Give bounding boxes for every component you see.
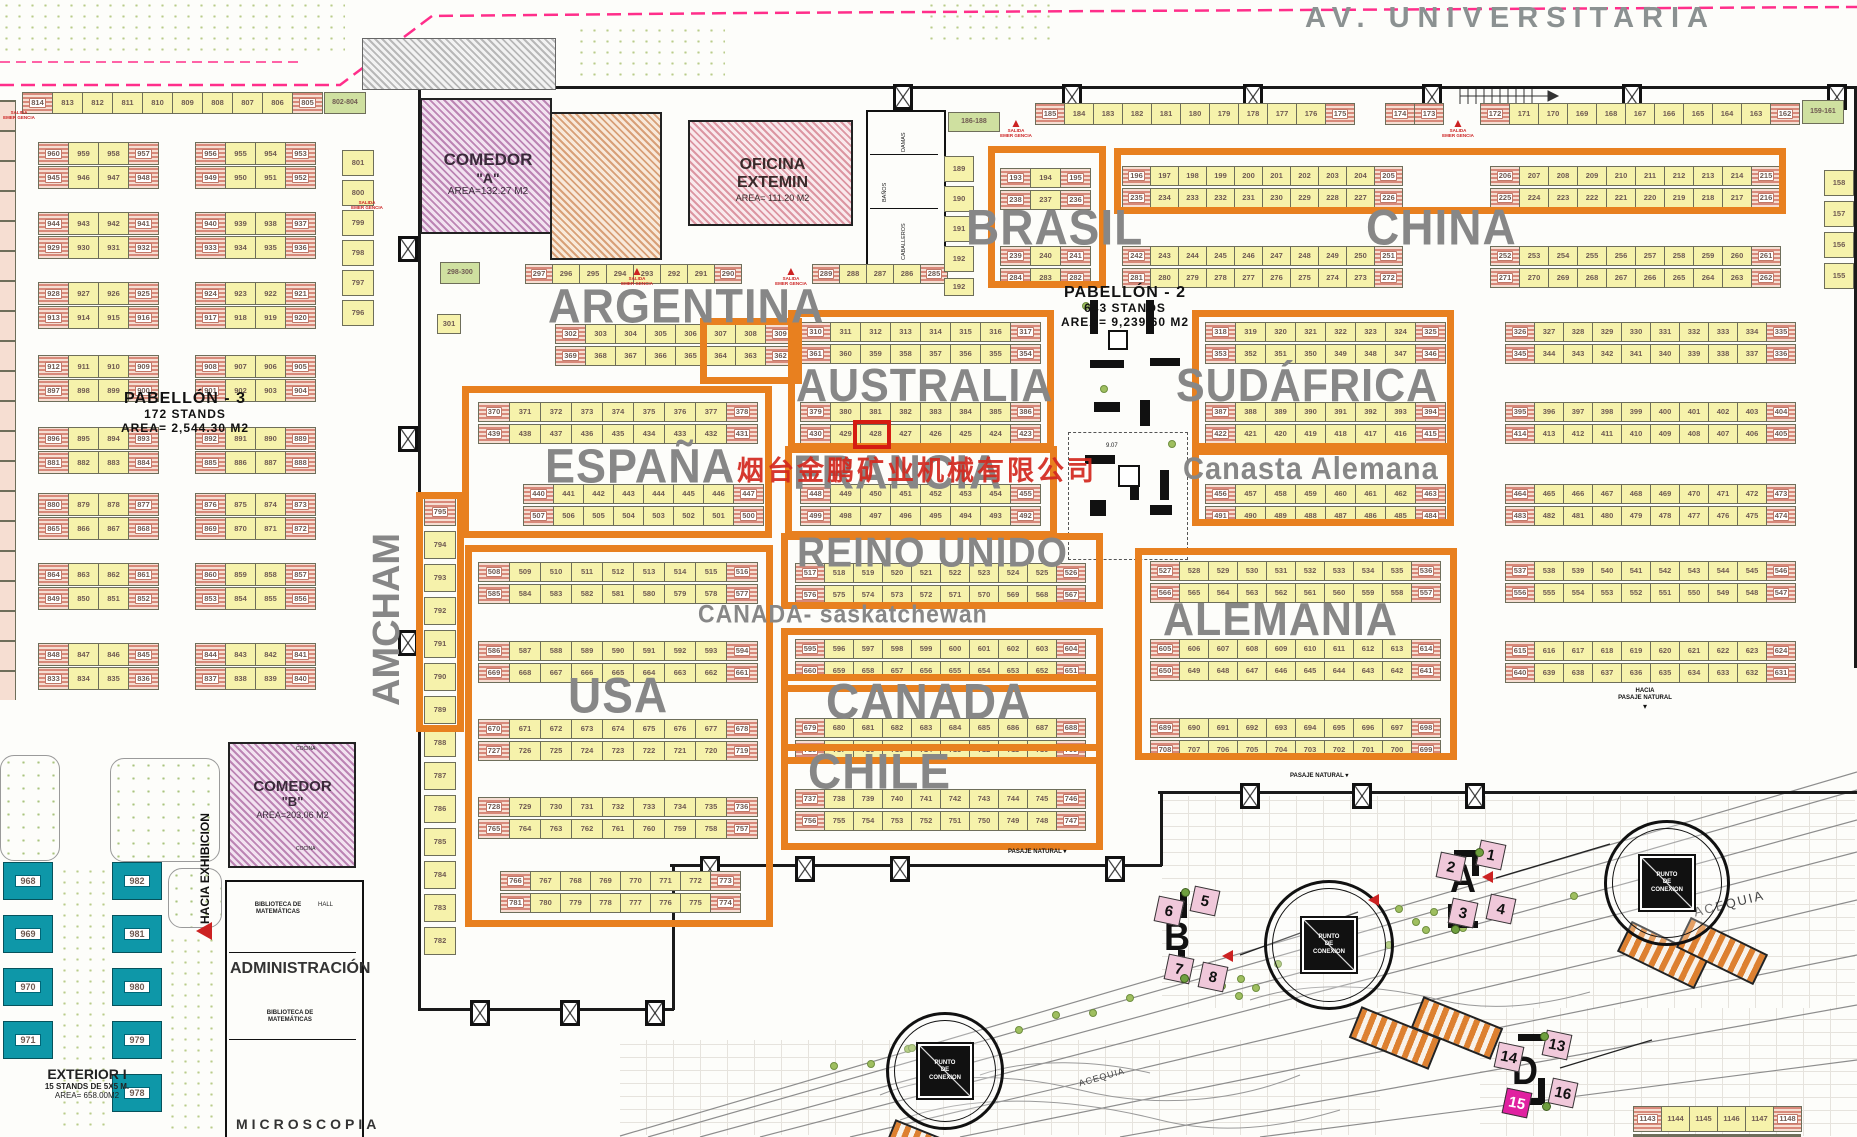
- stand-329: 329: [1592, 322, 1622, 342]
- stand-number: 221: [1615, 194, 1628, 202]
- stand-number: 429: [839, 430, 852, 438]
- stand-589: 589: [571, 641, 603, 661]
- stand-536: 536: [1411, 561, 1441, 581]
- stand-number: 246: [1242, 252, 1255, 260]
- stand-number: 971: [15, 1034, 40, 1046]
- stand-618: 618: [1592, 641, 1622, 661]
- stand-number: 838: [234, 675, 247, 683]
- stand-212: 212: [1664, 166, 1694, 186]
- stand-number: 504: [622, 512, 635, 520]
- stand-621: 621: [1679, 641, 1709, 661]
- stand-495: 495: [920, 506, 951, 526]
- stand-982: 982: [112, 862, 162, 900]
- salida-emergencia-sign: ▲SALIDAEMER GENCIA: [620, 266, 654, 286]
- stand-553: 553: [1592, 583, 1622, 603]
- label-usa: USA: [568, 666, 668, 724]
- stand-780: 780: [530, 893, 561, 913]
- stand-806: 806: [262, 92, 293, 114]
- stand-597: 597: [853, 639, 883, 659]
- stand-number: 757: [734, 824, 751, 834]
- stand-number: 843: [234, 651, 247, 659]
- stand-1147: 1147: [1745, 1106, 1774, 1132]
- stand-377: 377: [695, 402, 727, 422]
- stand-number: 663: [674, 669, 687, 677]
- marker-square-4: 4: [1486, 894, 1517, 925]
- stand-166: 166: [1654, 103, 1684, 125]
- stand-number: 867: [107, 525, 120, 533]
- stand-784: 784: [424, 861, 456, 889]
- stand-707: 707: [1179, 740, 1209, 760]
- stand-number: 839: [264, 675, 277, 683]
- stand-596: 596: [824, 639, 854, 659]
- stand-number: 958: [107, 150, 120, 158]
- stand-192: 192: [944, 278, 974, 296]
- stand-671: 671: [509, 719, 541, 739]
- stand-number: 602: [1007, 645, 1020, 653]
- salida-text: SALIDAEMER GENCIA: [350, 200, 384, 210]
- stand-number: 854: [234, 595, 247, 603]
- stand-405: 405: [1766, 424, 1796, 444]
- stand-1144: 1144: [1661, 1106, 1690, 1132]
- stand-number: 471: [1717, 490, 1730, 498]
- stand-587: 587: [509, 641, 541, 661]
- stand-number: 529: [1217, 567, 1230, 575]
- stand-599: 599: [911, 639, 941, 659]
- stand-number: 574: [862, 591, 875, 599]
- stand-1146: 1146: [1717, 1106, 1746, 1132]
- stairs-icon: [1460, 88, 1558, 104]
- stand-number: 280: [1158, 274, 1171, 282]
- stand-531: 531: [1266, 561, 1296, 581]
- stand-number: 516: [734, 567, 751, 577]
- stand-number: 498: [839, 512, 852, 520]
- stand-624: 624: [1766, 641, 1796, 661]
- furniture-icon: [1140, 400, 1150, 426]
- furniture-icon: [1090, 360, 1124, 368]
- stand-751: 751: [940, 811, 970, 831]
- stand-197: 197: [1150, 166, 1179, 186]
- stand-number: 786: [434, 805, 447, 813]
- stand-number: 585: [486, 589, 503, 599]
- chinese-watermark: 烟台金鹏矿业机械有限公司: [737, 449, 1097, 488]
- stand-number: 534: [1362, 567, 1375, 575]
- stand-535: 535: [1382, 561, 1412, 581]
- stand-637: 637: [1592, 663, 1622, 683]
- stand-number: 496: [899, 512, 912, 520]
- stand-374: 374: [602, 402, 634, 422]
- stand-number: 596: [833, 645, 846, 653]
- stand-619: 619: [1621, 641, 1651, 661]
- stand-number: 929: [45, 243, 62, 253]
- stand-879: 879: [68, 493, 99, 516]
- stand-951: 951: [255, 166, 286, 189]
- stand-number: 545: [1746, 567, 1759, 575]
- stand-914: 914: [68, 306, 99, 329]
- salida-emergencia-sign: ▲SALIDAEMER GENCIA: [774, 266, 808, 286]
- stand-number: 811: [121, 99, 133, 107]
- stand-278: 278: [1206, 268, 1235, 288]
- stand-number: 623: [1746, 647, 1759, 655]
- stand-number: 711: [1007, 746, 1019, 754]
- stand-number: 396: [1543, 408, 1556, 416]
- stand-698: 698: [1411, 718, 1441, 738]
- stand-number: 270: [1528, 274, 1541, 282]
- stand-286: 286: [893, 264, 921, 284]
- stand-223: 223: [1548, 188, 1578, 208]
- pilaster-icon: [893, 84, 913, 110]
- stand-number: 311: [839, 328, 851, 336]
- stand-676: 676: [664, 719, 696, 739]
- stand-number: 419: [1304, 430, 1317, 438]
- stand-number: 539: [1572, 567, 1585, 575]
- stand-170: 170: [1538, 103, 1568, 125]
- stand-934: 934: [225, 236, 256, 259]
- stand-number: 928: [45, 289, 62, 299]
- stand-number: 330: [1630, 328, 1643, 336]
- green-dot: [1412, 918, 1420, 926]
- stand-number: 538: [1543, 567, 1556, 575]
- stand-number: 554: [1572, 589, 1585, 597]
- stand-number: 194: [1039, 174, 1052, 182]
- stand-312: 312: [860, 322, 891, 342]
- label-oficina-extemin: OFICINAEXTEMINAREA= 111.20 M2: [700, 156, 845, 203]
- marker-dot: [1180, 974, 1189, 983]
- stand-221: 221: [1606, 188, 1636, 208]
- stand-number: 849: [45, 594, 62, 604]
- stand-723: 723: [602, 741, 634, 761]
- punto-de-conexion-label: PUNTODECONEXION: [1640, 856, 1694, 910]
- stand-number: 374: [612, 408, 625, 416]
- stand-939: 939: [225, 212, 256, 235]
- stand-790: 790: [424, 663, 456, 691]
- stand-number: 532: [1304, 567, 1317, 575]
- stand-668: 668: [509, 663, 541, 683]
- stand-number: 190: [953, 195, 966, 203]
- stand-941: 941: [128, 212, 159, 235]
- stand-909: 909: [128, 355, 159, 378]
- stand-number: 751: [949, 817, 962, 825]
- stand-722: 722: [633, 741, 665, 761]
- stand-710: 710: [1027, 740, 1057, 760]
- stand-number: 180: [1189, 110, 1202, 118]
- stand-number: 371: [519, 408, 532, 416]
- stand-number: 847: [77, 651, 90, 659]
- stand-533: 533: [1324, 561, 1354, 581]
- stand-418: 418: [1325, 424, 1356, 444]
- stand-number: 747: [1063, 816, 1080, 826]
- stand-number: 667: [550, 669, 563, 677]
- red-arrow-icon: [1222, 950, 1233, 962]
- stand-number: 189: [953, 165, 966, 173]
- stand-number: 797: [352, 279, 365, 287]
- stand-number: 541: [1630, 567, 1643, 575]
- stand-345: 345: [1505, 344, 1535, 364]
- stand-number: 587: [519, 647, 532, 655]
- stand-854: 854: [225, 587, 256, 610]
- stand-403: 403: [1737, 402, 1767, 422]
- stand-number: 761: [612, 825, 625, 833]
- stand-979: 979: [112, 1021, 162, 1059]
- stand-number: 873: [292, 500, 309, 510]
- label-comedor-a: COMEDOR"A"AREA=132.27 M2: [418, 150, 558, 197]
- stand-number: 1145: [1695, 1115, 1711, 1123]
- stand-number: 638: [1572, 669, 1585, 677]
- stand-263: 263: [1722, 268, 1752, 288]
- stand-258: 258: [1664, 246, 1694, 266]
- stand-615: 615: [1505, 641, 1535, 661]
- stand-588: 588: [540, 641, 572, 661]
- stand-number: 949: [202, 173, 219, 183]
- stand-695: 695: [1324, 718, 1354, 738]
- stand-number: 435: [612, 430, 625, 438]
- stand-600: 600: [940, 639, 970, 659]
- stand-423: 423: [1010, 424, 1041, 444]
- stand-number: 578: [705, 590, 718, 598]
- stand-number: 422: [1212, 429, 1229, 439]
- stand-262: 262: [1751, 268, 1781, 288]
- stand-313: 313: [890, 322, 921, 342]
- stand-287: 287: [866, 264, 894, 284]
- stand-885: 885: [195, 451, 226, 474]
- stand-955: 955: [225, 142, 256, 165]
- stand-839: 839: [255, 667, 286, 690]
- green-dot: [1089, 1009, 1097, 1017]
- stand-number: 234: [1158, 194, 1171, 202]
- stand-number: 651: [1063, 666, 1080, 676]
- stand-602: 602: [998, 639, 1028, 659]
- stand-number: 952: [292, 173, 309, 183]
- stand-number: 643: [1362, 667, 1375, 675]
- stand-663: 663: [664, 663, 696, 683]
- stand-398: 398: [1592, 402, 1622, 422]
- stand-number: 950: [234, 174, 247, 182]
- stand-number: 447: [740, 489, 757, 499]
- stand-736: 736: [726, 797, 758, 817]
- stand-number: 622: [1717, 647, 1730, 655]
- stand-869: 869: [195, 517, 226, 540]
- stand-number: 298-300: [447, 269, 473, 277]
- stand-number: 490: [1244, 512, 1257, 520]
- stand-number: 509: [519, 568, 532, 576]
- stand-number: 916: [135, 313, 152, 323]
- stand-number: 275: [1298, 274, 1311, 282]
- stand-number: 850: [77, 595, 90, 603]
- stand-773: 773: [710, 871, 741, 891]
- stand-484: 484: [1415, 506, 1446, 526]
- stand-number: 813: [61, 99, 74, 107]
- stand-number: 951: [264, 174, 277, 182]
- floor-plan-canvas: AV. UNIVERSITARIA 8148138128118108098088…: [0, 0, 1857, 1137]
- stand-number: 878: [107, 501, 120, 509]
- stand-476: 476: [1708, 506, 1738, 526]
- stand-number: 913: [45, 313, 62, 323]
- hacia-exhibicion-arrow-icon: [196, 922, 212, 940]
- stand-number: 259: [1702, 252, 1715, 260]
- stand-number: 616: [1543, 647, 1556, 655]
- stand-number: 214: [1731, 172, 1744, 180]
- stand-375: 375: [633, 402, 665, 422]
- stand-number: 851: [107, 595, 120, 603]
- stand-number: 922: [264, 290, 277, 298]
- stand-838: 838: [225, 667, 256, 690]
- stand-number: 350: [1304, 350, 1317, 358]
- pilaster-icon: [795, 856, 815, 882]
- label-biblioteca-1: BIBLIOTECA DEMATEMÁTICAS: [243, 902, 313, 916]
- stand-number: 794: [434, 541, 447, 549]
- stand-number: 458: [1274, 490, 1287, 498]
- stand-number: 808: [211, 99, 224, 107]
- stand-163: 163: [1741, 103, 1771, 125]
- stand-417: 417: [1355, 424, 1386, 444]
- stand-483: 483: [1505, 506, 1535, 526]
- stand-409: 409: [1650, 424, 1680, 444]
- stand-number: 339: [1688, 350, 1701, 358]
- stand-number: 405: [1773, 429, 1790, 439]
- stand-813: 813: [52, 92, 83, 114]
- stand-878: 878: [98, 493, 129, 516]
- stand-178: 178: [1238, 103, 1268, 125]
- stand-number: 927: [77, 290, 90, 298]
- stand-number: 171: [1518, 110, 1531, 118]
- stand-492: 492: [1010, 506, 1041, 526]
- stand-876: 876: [195, 493, 226, 516]
- stand-number: 262: [1758, 273, 1775, 283]
- label-china: CHINA: [1366, 198, 1517, 256]
- stand-319: 319: [1235, 322, 1266, 342]
- stand-778: 778: [590, 893, 621, 913]
- stand-number: 840: [292, 674, 309, 684]
- stand-315: 315: [950, 322, 981, 342]
- stand-408: 408: [1679, 424, 1709, 444]
- stand-number: 863: [77, 571, 90, 579]
- stand-number: 882: [77, 459, 90, 467]
- stand-946: 946: [68, 166, 99, 189]
- stand-number: 800: [352, 189, 365, 197]
- stand-734: 734: [664, 797, 696, 817]
- marker-square-6: 6: [1154, 896, 1185, 927]
- stand-number: 784: [434, 871, 447, 879]
- stand-915: 915: [98, 306, 129, 329]
- stand-number: 939: [234, 220, 247, 228]
- stand-363: 363: [735, 346, 766, 366]
- stand-925: 925: [128, 282, 159, 305]
- stand-number: 312: [869, 328, 882, 336]
- stand-number: 424: [989, 430, 1002, 438]
- stand-number: 801: [352, 159, 365, 167]
- stand-729: 729: [509, 797, 541, 817]
- stand-number: 917: [202, 313, 219, 323]
- stand-number: 548: [1746, 589, 1759, 597]
- stand-number: 467: [1601, 490, 1614, 498]
- stand-number: 256: [1615, 252, 1628, 260]
- stand-837: 837: [195, 667, 226, 690]
- stand-number: 468: [1630, 490, 1643, 498]
- stand-number: 617: [1572, 647, 1585, 655]
- label-comedor-a-line: "A": [418, 170, 558, 186]
- stand-871: 871: [255, 517, 286, 540]
- stand-167: 167: [1625, 103, 1655, 125]
- administracion-divider: [229, 952, 356, 953]
- stand-159-161: 159-161: [1802, 100, 1844, 124]
- stand-206: 206: [1490, 166, 1520, 186]
- stand-843: 843: [225, 643, 256, 666]
- stand-number: 632: [1746, 669, 1759, 677]
- stand-number: 177: [1276, 110, 1289, 118]
- stand-836: 836: [128, 667, 159, 690]
- stand-913: 913: [38, 306, 69, 329]
- stand-number: 507: [530, 511, 547, 521]
- stand-487: 487: [1325, 506, 1356, 526]
- stand-331: 331: [1650, 322, 1680, 342]
- stand-number: 806: [271, 99, 284, 107]
- stand-number: 244: [1186, 252, 1199, 260]
- stand-877: 877: [128, 493, 159, 516]
- label-comedor-b-line: AREA=203.06 M2: [240, 810, 345, 820]
- stand-413: 413: [1534, 424, 1564, 444]
- marker-dot: [1540, 1032, 1549, 1041]
- stand-323: 323: [1355, 322, 1386, 342]
- stand-744: 744: [998, 789, 1028, 809]
- stand-857: 857: [285, 563, 316, 586]
- stand-number: 430: [807, 429, 824, 439]
- hatched-building: [362, 38, 556, 90]
- stand-number: 459: [1304, 490, 1317, 498]
- stand-number: 701: [1362, 746, 1375, 754]
- stand-number: 432: [705, 430, 718, 438]
- marker-dot: [1451, 925, 1460, 934]
- label-oficina-extemin-line: OFICINA: [700, 156, 845, 174]
- stand-number: 848: [45, 650, 62, 660]
- stand-259: 259: [1693, 246, 1723, 266]
- label-canada: CANADA: [826, 672, 1031, 730]
- stand-848: 848: [38, 643, 69, 666]
- stand-510: 510: [540, 562, 572, 582]
- stand-number: 744: [1007, 795, 1020, 803]
- avenue-label: AV. UNIVERSITARIA: [1305, 2, 1716, 35]
- stand-number: 413: [1543, 430, 1556, 438]
- stand-852: 852: [128, 587, 159, 610]
- stand-number: 868: [135, 524, 152, 534]
- stand-number: 601: [978, 645, 991, 653]
- stand-number: 980: [124, 981, 149, 993]
- pavilion-title-line: AREA= 2,544.30 M2: [75, 422, 295, 436]
- stand-number: 593: [705, 647, 718, 655]
- stand-number: 645: [1304, 667, 1317, 675]
- stand-840: 840: [285, 667, 316, 690]
- stand-number: 360: [839, 350, 852, 358]
- stand-number: 969: [15, 928, 40, 940]
- stand-217: 217: [1722, 188, 1752, 208]
- stand-870: 870: [225, 517, 256, 540]
- stand-788: 788: [424, 729, 456, 757]
- pavilion3-title: PABELLÓN - 3172 STANDSAREA= 2,544.30 M2: [75, 390, 295, 436]
- green-dot: [1430, 908, 1438, 916]
- stand-number: 846: [107, 651, 120, 659]
- stand-number: 209: [1586, 172, 1599, 180]
- stand-162: 162: [1770, 103, 1800, 125]
- stand-number: 231: [1242, 194, 1255, 202]
- stand-number: 527: [1157, 566, 1174, 576]
- stand-945: 945: [38, 166, 69, 189]
- stand-727: 727: [478, 741, 510, 761]
- stand-number: 411: [1601, 430, 1613, 438]
- stand-477: 477: [1679, 506, 1709, 526]
- stand-200: 200: [1234, 166, 1263, 186]
- stand-811: 811: [112, 92, 143, 114]
- stand-number: 845: [135, 650, 152, 660]
- stand-number: 276: [1270, 274, 1283, 282]
- stand-949: 949: [195, 166, 226, 189]
